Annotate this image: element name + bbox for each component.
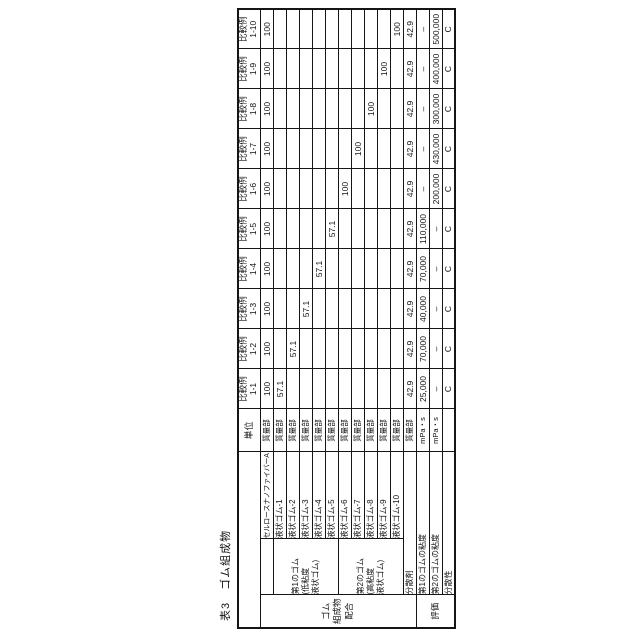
value-cell bbox=[273, 129, 286, 169]
row-label-dispersibility: 分散性 bbox=[442, 452, 455, 595]
value-cell: 100 bbox=[260, 169, 273, 209]
patent-page: 表3 ゴム組成物 単位 比較例1-1 比較例1-2 比較例1-3 比較例1-4 … bbox=[0, 0, 640, 640]
value-cell bbox=[325, 249, 338, 289]
row-label: 液状ゴム-5 bbox=[325, 452, 338, 539]
unit-cell: 質量部 bbox=[286, 409, 299, 452]
value-cell bbox=[273, 329, 286, 369]
value-cell bbox=[286, 289, 299, 329]
value-cell bbox=[338, 129, 351, 169]
value-cell bbox=[312, 369, 325, 409]
value-cell bbox=[377, 209, 390, 249]
value-cell: 100 bbox=[377, 49, 390, 89]
value-cell bbox=[312, 289, 325, 329]
value-cell bbox=[286, 89, 299, 129]
value-cell: 57.1 bbox=[299, 289, 312, 329]
value-cell bbox=[377, 129, 390, 169]
value-cell bbox=[390, 289, 403, 329]
value-cell: – bbox=[416, 169, 429, 209]
value-cell: 430,000 bbox=[429, 129, 442, 169]
value-cell bbox=[325, 369, 338, 409]
unit-cell: 質量部 bbox=[377, 409, 390, 452]
value-cell bbox=[312, 329, 325, 369]
value-cell bbox=[273, 289, 286, 329]
value-cell bbox=[299, 169, 312, 209]
value-cell: – bbox=[429, 289, 442, 329]
column-header-1-5: 比較例1-5 bbox=[238, 209, 260, 249]
value-cell: C bbox=[442, 9, 455, 49]
row-label: 液状ゴム-8 bbox=[364, 452, 377, 539]
column-header-1-1: 比較例1-1 bbox=[238, 369, 260, 409]
value-cell: C bbox=[442, 329, 455, 369]
value-cell bbox=[390, 209, 403, 249]
value-cell bbox=[338, 89, 351, 129]
value-cell bbox=[286, 129, 299, 169]
value-cell bbox=[377, 249, 390, 289]
unit-cell: 質量部 bbox=[390, 409, 403, 452]
value-cell: 42.9 bbox=[403, 329, 416, 369]
value-cell bbox=[273, 9, 286, 49]
value-cell bbox=[390, 89, 403, 129]
value-cell: 100 bbox=[260, 9, 273, 49]
table-title: 表3 ゴム組成物 bbox=[217, 9, 233, 621]
value-cell bbox=[273, 89, 286, 129]
table-row-viscosity1: 評価 第1のゴムの粘度 mPa・s 25,000 70,000 40,000 7… bbox=[416, 9, 429, 628]
value-cell: 400,000 bbox=[429, 49, 442, 89]
value-cell bbox=[377, 369, 390, 409]
value-cell: 57.1 bbox=[312, 249, 325, 289]
unit-cell: 質量部 bbox=[312, 409, 325, 452]
value-cell bbox=[338, 249, 351, 289]
value-cell: – bbox=[416, 49, 429, 89]
value-cell: 70,000 bbox=[416, 249, 429, 289]
value-cell: 42.9 bbox=[403, 89, 416, 129]
value-cell bbox=[390, 329, 403, 369]
value-cell: 42.9 bbox=[403, 209, 416, 249]
value-cell bbox=[286, 209, 299, 249]
unit-cell: mPa・s bbox=[416, 409, 429, 452]
value-cell bbox=[377, 289, 390, 329]
row-label: 液状ゴム-1 bbox=[273, 452, 286, 539]
value-cell bbox=[299, 329, 312, 369]
value-cell bbox=[351, 9, 364, 49]
column-header-line2: 1-8 bbox=[249, 90, 259, 129]
value-cell bbox=[299, 209, 312, 249]
table-row-lr6: 第2のゴム (高粘度 液状ゴム) 液状ゴム-6 質量部 100 bbox=[338, 9, 351, 628]
value-cell bbox=[338, 209, 351, 249]
value-cell bbox=[299, 89, 312, 129]
value-cell bbox=[273, 49, 286, 89]
value-cell: – bbox=[429, 209, 442, 249]
value-cell: 100 bbox=[260, 249, 273, 289]
row-label: 液状ゴム-6 bbox=[338, 452, 351, 539]
value-cell bbox=[351, 369, 364, 409]
value-cell bbox=[299, 9, 312, 49]
value-cell bbox=[338, 369, 351, 409]
value-cell bbox=[338, 9, 351, 49]
value-cell: C bbox=[442, 89, 455, 129]
value-cell: 100 bbox=[260, 329, 273, 369]
column-header-1-7: 比較例1-7 bbox=[238, 129, 260, 169]
value-cell: C bbox=[442, 129, 455, 169]
value-cell bbox=[325, 289, 338, 329]
value-cell: 42.9 bbox=[403, 49, 416, 89]
column-header-line2: 1-3 bbox=[249, 290, 259, 329]
row-label-cnf: セルロースナノファイバーA bbox=[260, 452, 273, 539]
column-header-line2: 1-5 bbox=[249, 210, 259, 249]
row-label: 液状ゴム-7 bbox=[351, 452, 364, 539]
value-cell: C bbox=[442, 169, 455, 209]
table-row-lr9: 液状ゴム-9 質量部 100 bbox=[377, 9, 390, 628]
value-cell bbox=[351, 289, 364, 329]
unit-cell bbox=[442, 409, 455, 452]
value-cell: 42.9 bbox=[403, 129, 416, 169]
value-cell: 57.1 bbox=[286, 329, 299, 369]
value-cell: 70,000 bbox=[416, 329, 429, 369]
value-cell bbox=[312, 89, 325, 129]
row-label: 液状ゴム-10 bbox=[390, 452, 403, 539]
value-cell: – bbox=[416, 129, 429, 169]
value-cell: 25,000 bbox=[416, 369, 429, 409]
table-row-cnf: ゴム 組成物 配合 セルロースナノファイバーA 質量部 100 100 100 … bbox=[260, 9, 273, 628]
unit-cell: 質量部 bbox=[364, 409, 377, 452]
column-header-line2: 1-4 bbox=[249, 250, 259, 289]
column-header-1-8: 比較例1-8 bbox=[238, 89, 260, 129]
value-cell bbox=[286, 169, 299, 209]
row-label: 液状ゴム-2 bbox=[286, 452, 299, 539]
value-cell bbox=[325, 49, 338, 89]
table-row-lr4: 液状ゴム-4 質量部 57.1 bbox=[312, 9, 325, 628]
value-cell bbox=[312, 49, 325, 89]
row-label: 液状ゴム-4 bbox=[312, 452, 325, 539]
column-header-line2: 1-9 bbox=[249, 50, 259, 89]
column-header-1-9: 比較例1-9 bbox=[238, 49, 260, 89]
column-header-line2: 1-6 bbox=[249, 170, 259, 209]
value-cell bbox=[325, 129, 338, 169]
value-cell bbox=[273, 209, 286, 249]
value-cell: C bbox=[442, 369, 455, 409]
table-row-dispersibility: 分散性 C C C C C C C C C C bbox=[442, 9, 455, 628]
value-cell: 42.9 bbox=[403, 369, 416, 409]
value-cell bbox=[286, 369, 299, 409]
value-cell bbox=[364, 49, 377, 89]
value-cell bbox=[299, 249, 312, 289]
value-cell: 500,000 bbox=[429, 9, 442, 49]
value-cell bbox=[390, 369, 403, 409]
table-row-lr10: 液状ゴム-10 質量部 100 bbox=[390, 9, 403, 628]
value-cell bbox=[364, 169, 377, 209]
unit-cell: 質量部 bbox=[273, 409, 286, 452]
value-cell: – bbox=[416, 9, 429, 49]
row-label-dispersant: 分散剤 bbox=[403, 452, 416, 595]
column-header-1-3: 比較例1-3 bbox=[238, 289, 260, 329]
value-cell bbox=[312, 129, 325, 169]
value-cell bbox=[299, 129, 312, 169]
column-header-1-10: 比較例1-10 bbox=[238, 9, 260, 49]
value-cell bbox=[338, 289, 351, 329]
value-cell bbox=[390, 49, 403, 89]
value-cell bbox=[325, 329, 338, 369]
column-header-1-6: 比較例1-6 bbox=[238, 169, 260, 209]
table-row-dispersant: 分散剤 質量部 42.9 42.9 42.9 42.9 42.9 42.9 42… bbox=[403, 9, 416, 628]
value-cell bbox=[390, 169, 403, 209]
value-cell bbox=[338, 329, 351, 369]
value-cell: 100 bbox=[260, 369, 273, 409]
value-cell bbox=[377, 89, 390, 129]
value-cell bbox=[325, 89, 338, 129]
value-cell: – bbox=[429, 369, 442, 409]
table-row-lr2: 液状ゴム-2 質量部 57.1 bbox=[286, 9, 299, 628]
table-row-lr1: 第1のゴム (低粘度 液状ゴム) 液状ゴム-1 質量部 57.1 bbox=[273, 9, 286, 628]
row-label: 液状ゴム-3 bbox=[299, 452, 312, 539]
value-cell bbox=[273, 169, 286, 209]
value-cell bbox=[364, 329, 377, 369]
value-cell: 57.1 bbox=[325, 209, 338, 249]
value-cell bbox=[325, 9, 338, 49]
value-cell: 57.1 bbox=[273, 369, 286, 409]
unit-cell: 質量部 bbox=[338, 409, 351, 452]
value-cell: 100 bbox=[364, 89, 377, 129]
value-cell bbox=[377, 329, 390, 369]
value-cell bbox=[273, 249, 286, 289]
group-label-rubber1: 第1のゴム (低粘度 液状ゴム) bbox=[273, 539, 338, 595]
section-label-evaluation: 評価 bbox=[416, 595, 455, 628]
column-header-line2: 1-2 bbox=[249, 330, 259, 369]
row-label: 液状ゴム-9 bbox=[377, 452, 390, 539]
value-cell bbox=[312, 9, 325, 49]
column-header-1-2: 比較例1-2 bbox=[238, 329, 260, 369]
unit-column-header: 単位 bbox=[238, 409, 260, 452]
value-cell bbox=[390, 129, 403, 169]
value-cell: 100 bbox=[260, 129, 273, 169]
value-cell: – bbox=[429, 329, 442, 369]
value-cell bbox=[364, 289, 377, 329]
value-cell bbox=[364, 369, 377, 409]
corner-cell bbox=[238, 452, 260, 628]
value-cell bbox=[364, 249, 377, 289]
value-cell bbox=[351, 209, 364, 249]
value-cell: 42.9 bbox=[403, 249, 416, 289]
value-cell bbox=[286, 49, 299, 89]
value-cell: 100 bbox=[351, 129, 364, 169]
unit-cell: 質量部 bbox=[299, 409, 312, 452]
row-label-viscosity1: 第1のゴムの粘度 bbox=[416, 452, 429, 595]
column-header-1-4: 比較例1-4 bbox=[238, 249, 260, 289]
value-cell bbox=[286, 9, 299, 49]
value-cell bbox=[338, 49, 351, 89]
table-row-lr7: 液状ゴム-7 質量部 100 bbox=[351, 9, 364, 628]
value-cell bbox=[325, 169, 338, 209]
value-cell: 42.9 bbox=[403, 169, 416, 209]
value-cell bbox=[351, 249, 364, 289]
value-cell bbox=[390, 249, 403, 289]
value-cell: 100 bbox=[260, 209, 273, 249]
value-cell: 40,000 bbox=[416, 289, 429, 329]
value-cell: C bbox=[442, 49, 455, 89]
unit-cell: 質量部 bbox=[351, 409, 364, 452]
value-cell: C bbox=[442, 209, 455, 249]
value-cell bbox=[351, 49, 364, 89]
value-cell: C bbox=[442, 289, 455, 329]
unit-cell: mPa・s bbox=[429, 409, 442, 452]
value-cell: 100 bbox=[338, 169, 351, 209]
value-cell bbox=[377, 169, 390, 209]
value-cell: 200,000 bbox=[429, 169, 442, 209]
value-cell bbox=[364, 9, 377, 49]
unit-cell: 質量部 bbox=[325, 409, 338, 452]
section-label-composition: ゴム 組成物 配合 bbox=[260, 595, 416, 628]
value-cell bbox=[364, 129, 377, 169]
row-label-viscosity2: 第2のゴムの粘度 bbox=[429, 452, 442, 595]
value-cell bbox=[351, 89, 364, 129]
unit-cell: 質量部 bbox=[403, 409, 416, 452]
column-header-line2: 1-10 bbox=[249, 10, 259, 49]
group-label-rubber2: 第2のゴム (高粘度 液状ゴム) bbox=[338, 539, 403, 595]
table-row-lr5: 液状ゴム-5 質量部 57.1 bbox=[325, 9, 338, 628]
value-cell bbox=[286, 249, 299, 289]
value-cell: 300,000 bbox=[429, 89, 442, 129]
value-cell: 100 bbox=[390, 9, 403, 49]
value-cell bbox=[364, 209, 377, 249]
header-row: 単位 比較例1-1 比較例1-2 比較例1-3 比較例1-4 比較例1-5 比較… bbox=[238, 9, 260, 628]
value-cell: 100 bbox=[260, 89, 273, 129]
value-cell: 42.9 bbox=[403, 289, 416, 329]
rubber-composition-table: 単位 比較例1-1 比較例1-2 比較例1-3 比較例1-4 比較例1-5 比較… bbox=[237, 8, 456, 629]
table-row-lr3: 液状ゴム-3 質量部 57.1 bbox=[299, 9, 312, 628]
value-cell: – bbox=[429, 249, 442, 289]
value-cell: C bbox=[442, 249, 455, 289]
table-row-lr8: 液状ゴム-8 質量部 100 bbox=[364, 9, 377, 628]
value-cell bbox=[312, 209, 325, 249]
value-cell bbox=[351, 169, 364, 209]
value-cell bbox=[351, 329, 364, 369]
value-cell: – bbox=[416, 89, 429, 129]
value-cell bbox=[299, 369, 312, 409]
column-header-line2: 1-7 bbox=[249, 130, 259, 169]
value-cell: 100 bbox=[260, 289, 273, 329]
rotated-table-block: 表3 ゴム組成物 単位 比較例1-1 比較例1-2 比較例1-3 比較例1-4 … bbox=[217, 9, 451, 629]
value-cell bbox=[299, 49, 312, 89]
unit-cell: 質量部 bbox=[260, 409, 273, 452]
value-cell: 42.9 bbox=[403, 9, 416, 49]
value-cell: 100 bbox=[260, 49, 273, 89]
value-cell bbox=[312, 169, 325, 209]
value-cell: 110,000 bbox=[416, 209, 429, 249]
group-cell-empty bbox=[260, 539, 273, 595]
value-cell bbox=[377, 9, 390, 49]
column-header-line2: 1-1 bbox=[249, 370, 259, 409]
table-row-viscosity2: 第2のゴムの粘度 mPa・s – – – – – 200,000 430,000… bbox=[429, 9, 442, 628]
